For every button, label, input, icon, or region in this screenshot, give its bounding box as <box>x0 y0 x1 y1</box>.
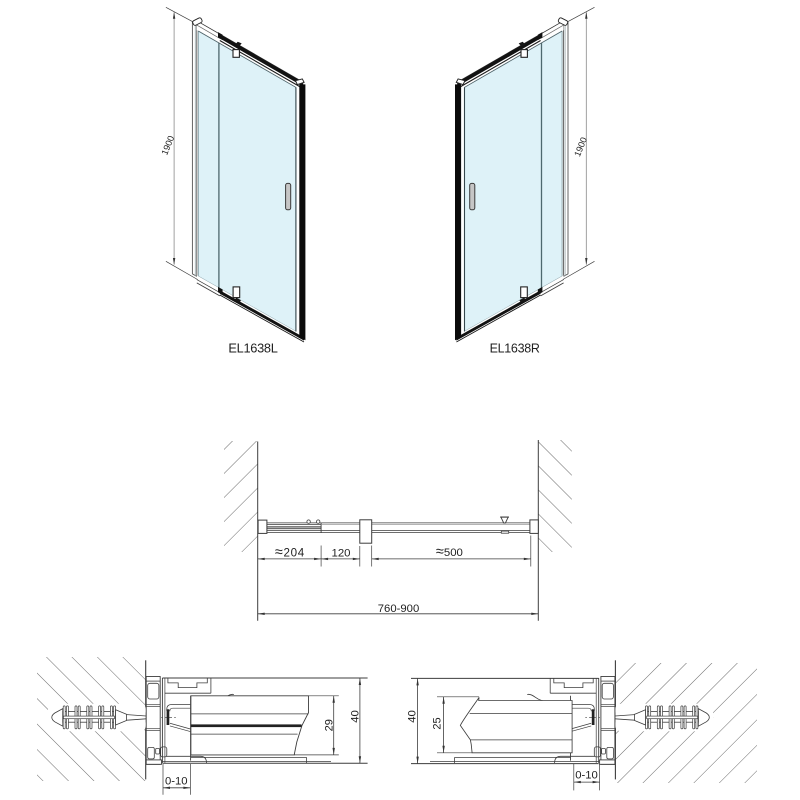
svg-text:29: 29 <box>323 719 335 731</box>
svg-text:760-900: 760-900 <box>378 603 419 615</box>
svg-text:EL1638L: EL1638L <box>228 341 277 356</box>
svg-text:1900: 1900 <box>159 134 176 156</box>
svg-text:40: 40 <box>350 710 362 723</box>
svg-text:25: 25 <box>432 717 444 729</box>
svg-text:0-10: 0-10 <box>165 775 188 787</box>
svg-text:≈204: ≈204 <box>275 544 305 560</box>
svg-text:40: 40 <box>406 710 418 723</box>
svg-text:0-10: 0-10 <box>575 769 598 781</box>
svg-text:EL1638R: EL1638R <box>490 342 540 356</box>
svg-text:≈500: ≈500 <box>436 544 463 560</box>
svg-text:120: 120 <box>331 547 350 559</box>
